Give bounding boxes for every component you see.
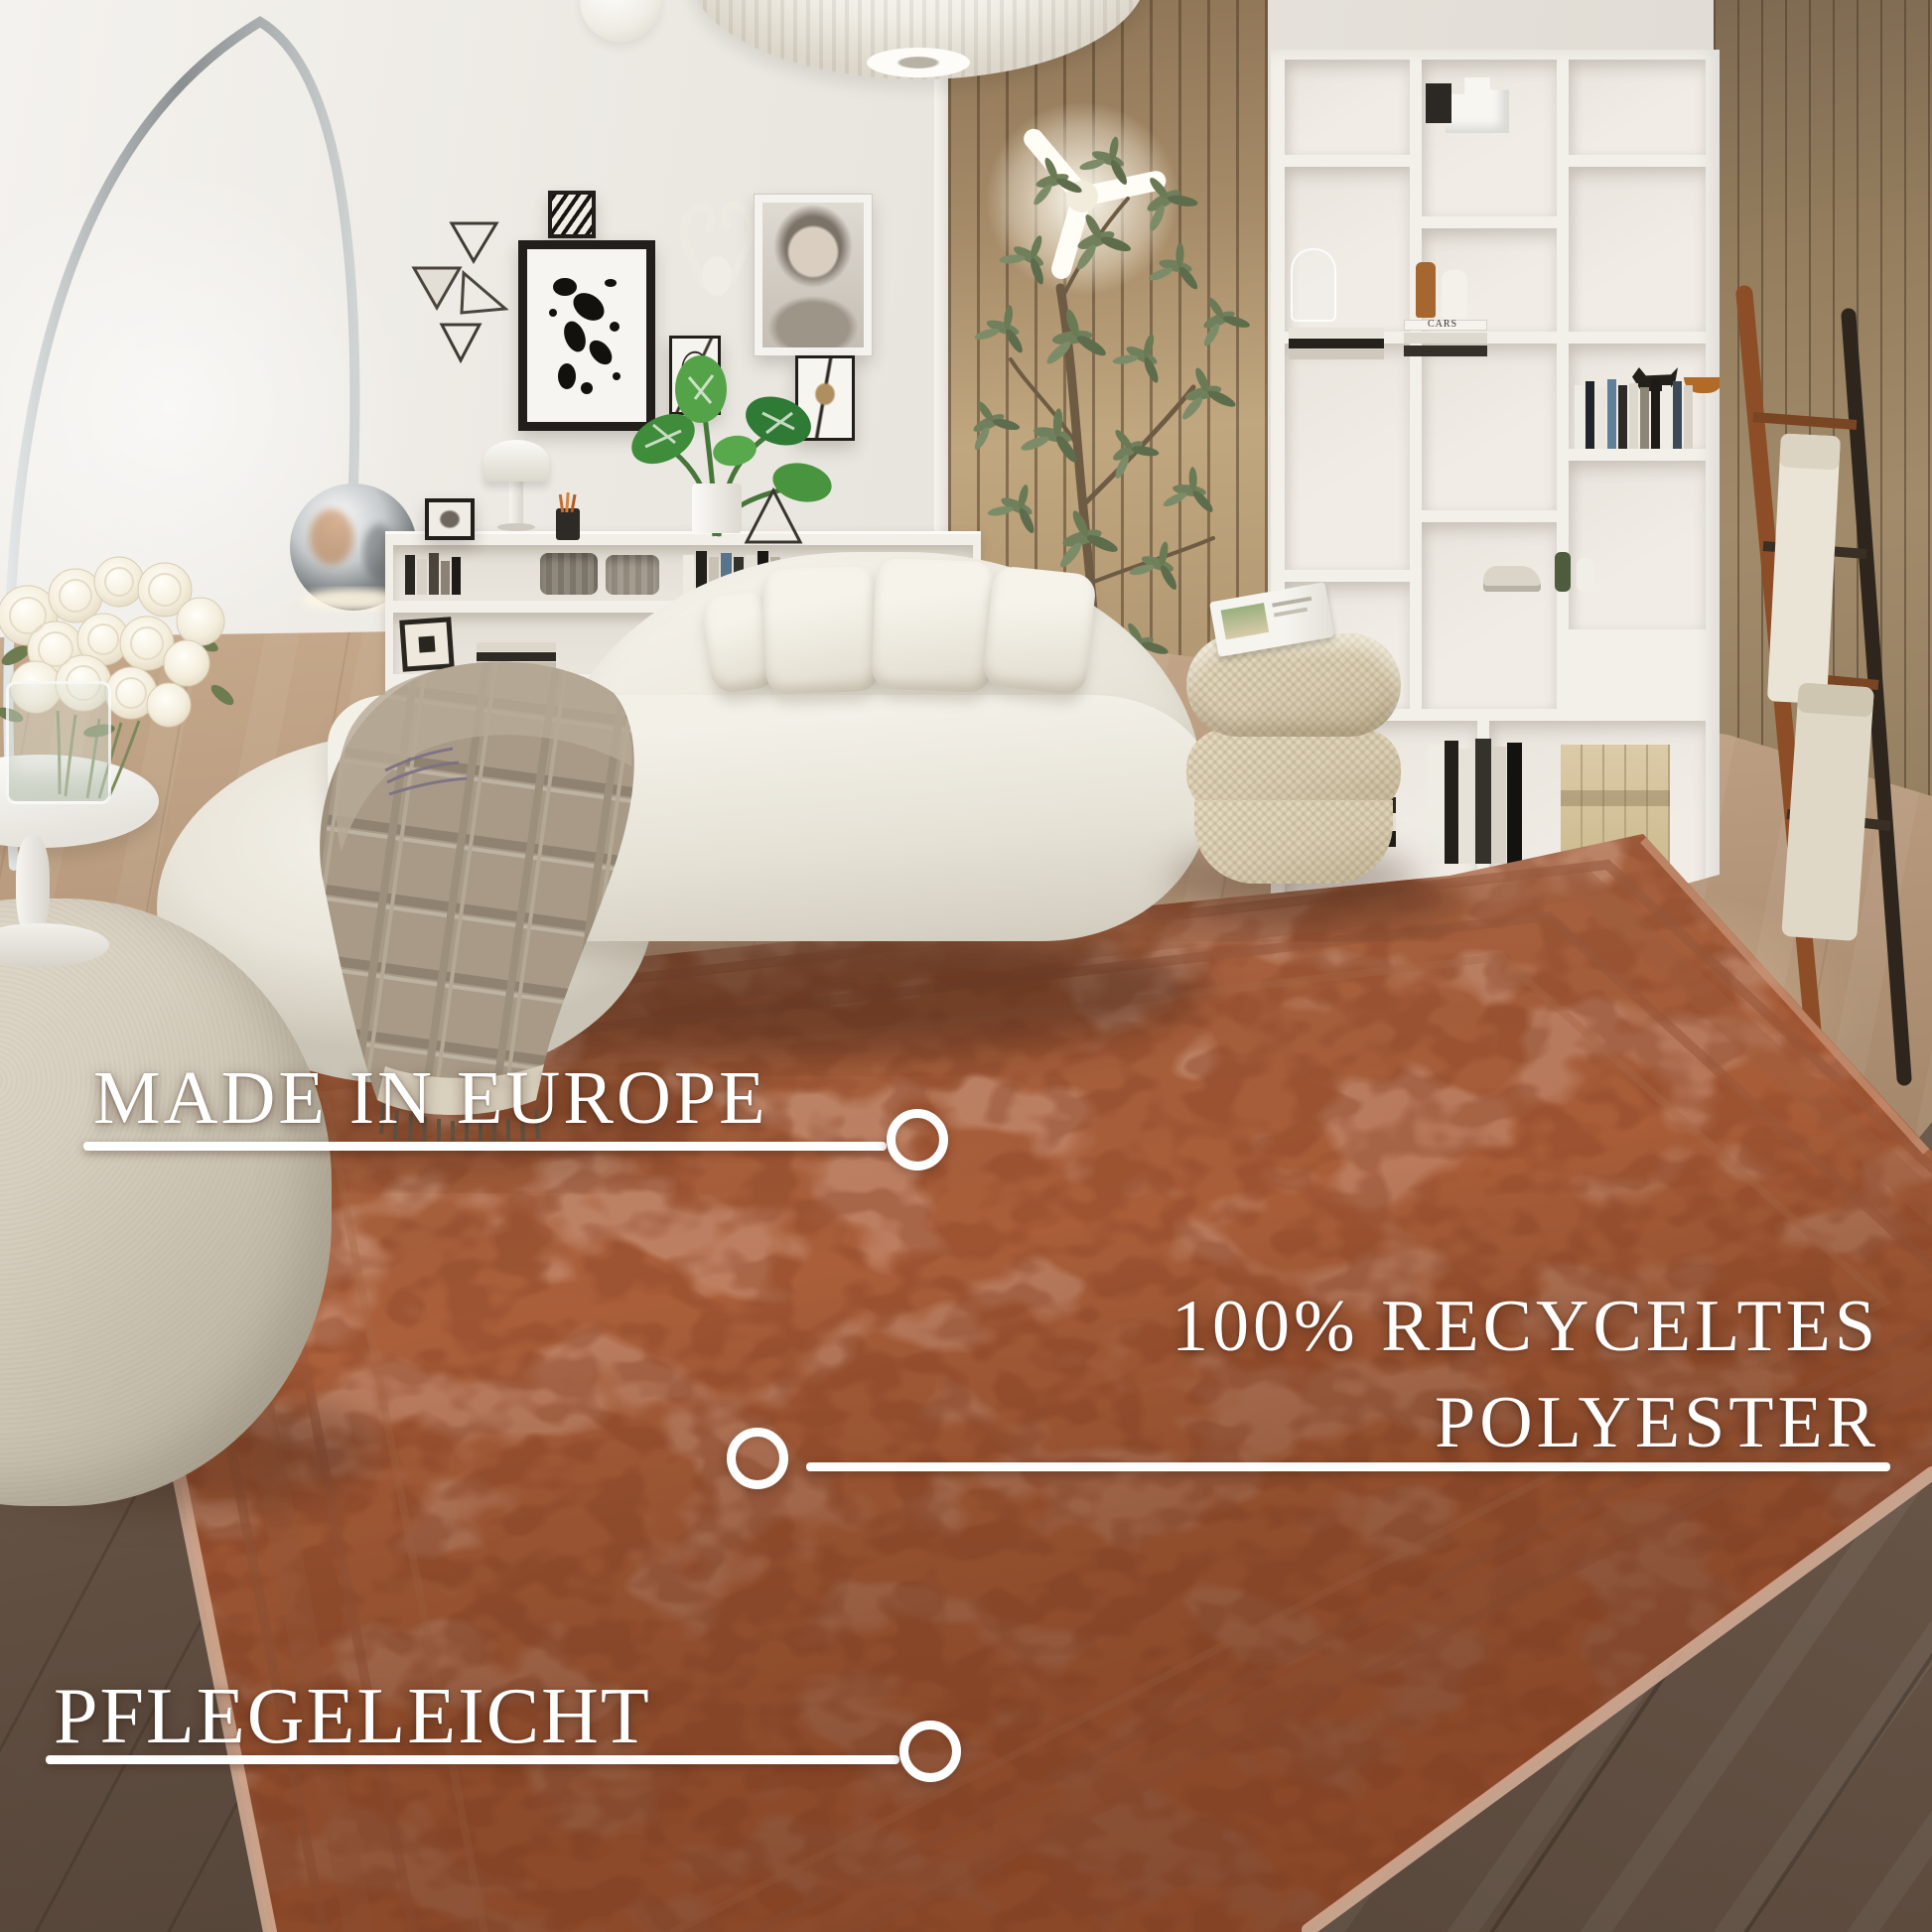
pouf-stack xyxy=(1186,633,1401,884)
glass-vase xyxy=(6,681,111,804)
callout-line-polyester xyxy=(806,1462,1890,1471)
callout-label-made-in-europe: MADE IN EUROPE xyxy=(93,1060,768,1136)
sofa-pillow xyxy=(762,566,880,695)
callout-circle-pflegeleicht xyxy=(899,1721,961,1782)
callout-label-polyester-line2: POLYESTER xyxy=(1435,1386,1879,1459)
callout-circle-made-in-europe xyxy=(887,1109,948,1171)
callout-label-pflegeleicht: PFLEGELEICHT xyxy=(54,1677,651,1756)
callout-circle-polyester xyxy=(727,1428,788,1489)
sofa-pillow xyxy=(872,558,996,693)
callout-label-polyester-line1: 100% RECYCELTES xyxy=(1172,1290,1879,1363)
scene-living-room: CARS xyxy=(0,0,1932,1932)
sofa-pillow xyxy=(982,565,1097,696)
callout-line-made-in-europe xyxy=(83,1142,887,1151)
